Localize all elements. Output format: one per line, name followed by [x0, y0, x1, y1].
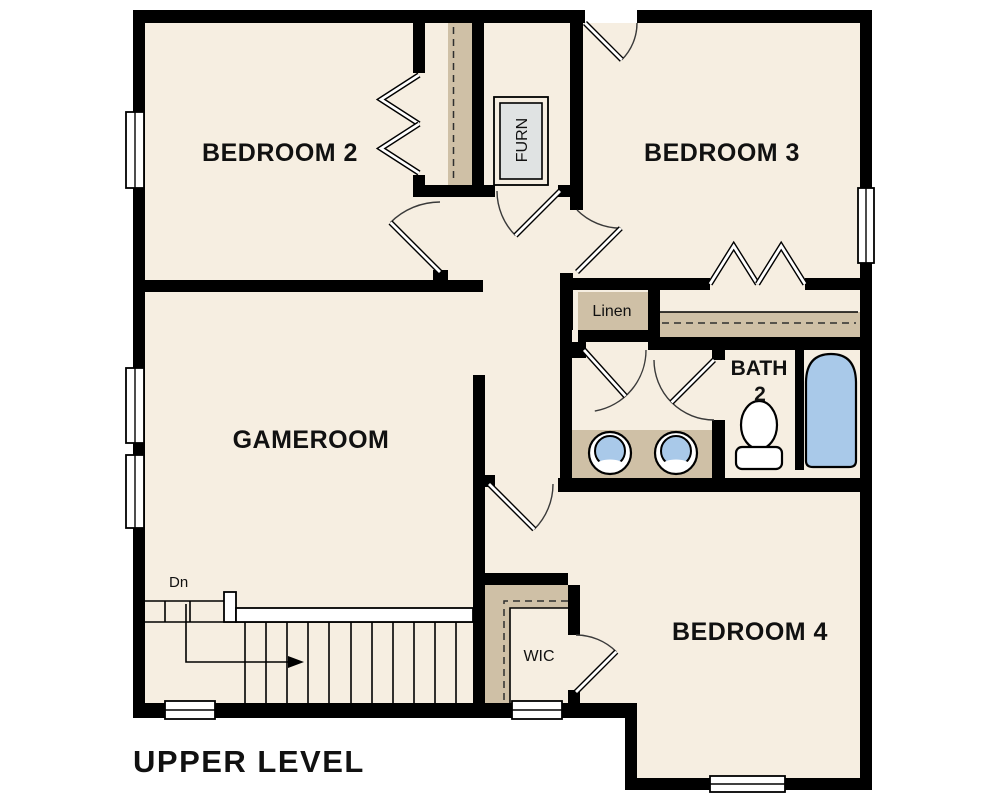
- furnace-label: FURN: [514, 118, 531, 162]
- bedroom2-closet-shelf: [448, 23, 472, 185]
- bath-label: BATH: [731, 357, 788, 380]
- bedroom3-south-wall-east: [805, 278, 860, 290]
- stair-wall-window: [165, 701, 215, 719]
- wic-label: WIC: [523, 648, 554, 665]
- bedroom4-north-wall: [558, 478, 872, 492]
- bedroom2-gameroom-wall: [133, 280, 483, 292]
- vestibule-corner-stub: [572, 342, 586, 358]
- bedroom2-label: BEDROOM 2: [202, 139, 358, 167]
- bedroom3-label: BEDROOM 3: [644, 139, 800, 167]
- bath-door-stub: [712, 350, 725, 360]
- bedroom4-floor-extension: [637, 703, 860, 778]
- stair-railing: [236, 608, 473, 622]
- bedroom3-closet-shelf: [660, 312, 860, 338]
- bedroom4-window: [710, 776, 785, 792]
- north-wall-west-segment: [133, 10, 585, 23]
- wic-window: [512, 701, 562, 719]
- bath-number-label: 2: [754, 383, 766, 406]
- closet-furnace-divider: [472, 23, 484, 196]
- gameroom-label: GAMEROOM: [233, 426, 390, 454]
- north-wall-east-segment: [637, 10, 872, 23]
- stair-newel: [224, 592, 236, 622]
- sink-right: [655, 432, 697, 474]
- wic-north-wall: [473, 573, 568, 585]
- east-wall: [860, 10, 872, 790]
- bedroom3-closet-south-wall: [648, 337, 872, 350]
- stairs-down-label: Dn: [169, 574, 188, 591]
- bedroom3-west-wall: [570, 23, 583, 210]
- linen-south-wall: [578, 330, 648, 342]
- bedroom2-east-wall-upper: [413, 23, 425, 73]
- bedroom3-window: [858, 188, 874, 263]
- floor-plan-page: BEDROOM 2 BEDROOM 3 GAMEROOM BEDROOM 4 B…: [0, 0, 1000, 800]
- bath-vestibule-west-wall: [560, 330, 572, 478]
- tub-divider-wall: [795, 350, 804, 470]
- plan-title: UPPER LEVEL: [133, 744, 365, 779]
- bathtub: [806, 354, 856, 467]
- gameroom-window-lower: [126, 455, 144, 528]
- linen-label: Linen: [592, 303, 631, 320]
- gameroom-east-wall: [473, 375, 485, 703]
- wic-east-wall: [568, 585, 580, 635]
- bedroom3-south-wall-west: [565, 278, 710, 290]
- floor-plan-drawing: BEDROOM 2 BEDROOM 3 GAMEROOM BEDROOM 4 B…: [0, 0, 1000, 800]
- sink-left: [589, 432, 631, 474]
- furnace-south-wall: [413, 185, 495, 197]
- bedroom4-step-wall: [625, 703, 637, 790]
- bedroom2-window: [126, 112, 144, 188]
- bedroom4-label: BEDROOM 4: [672, 618, 828, 646]
- gameroom-window-upper: [126, 368, 144, 443]
